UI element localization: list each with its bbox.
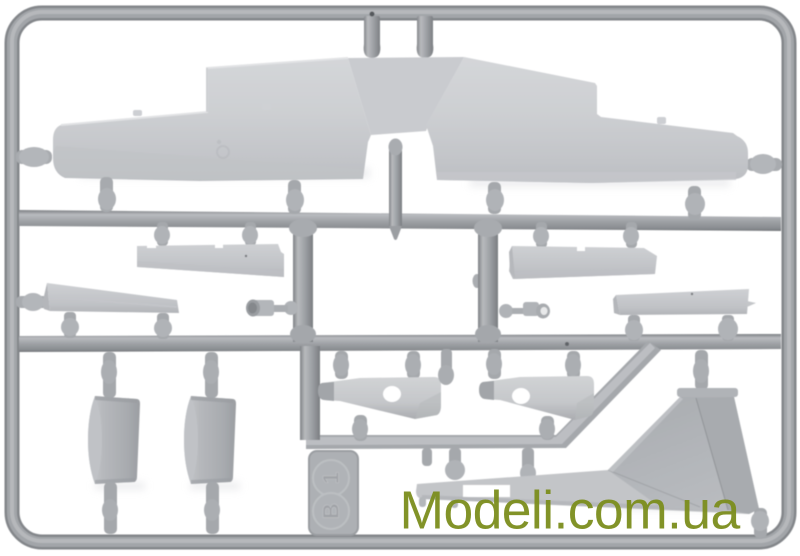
svg-text:B: B [319,503,344,519]
svg-text:Modeli.com.ua: Modeli.com.ua [400,482,741,541]
svg-text:1: 1 [319,472,344,484]
